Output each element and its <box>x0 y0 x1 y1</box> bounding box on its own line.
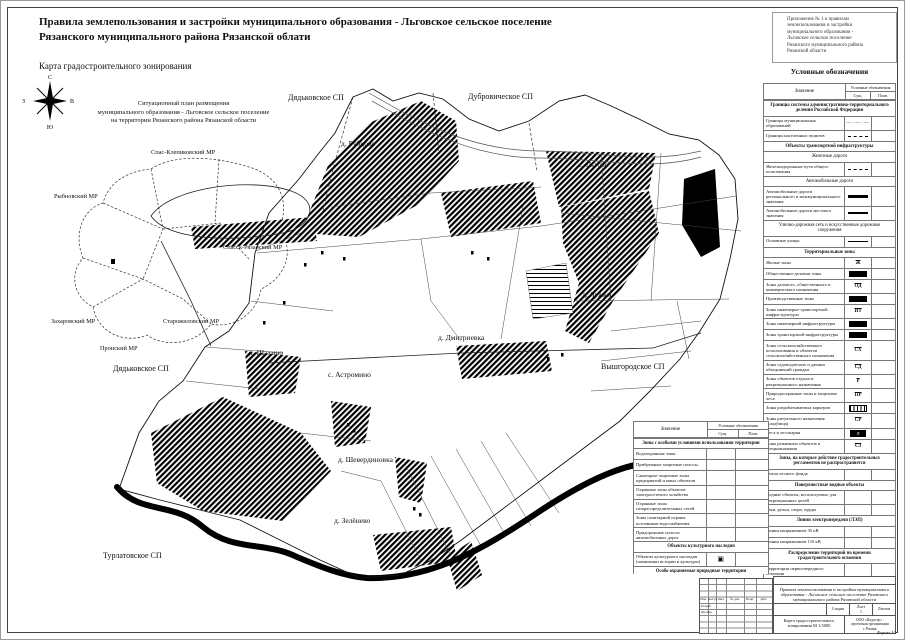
legend-col-planned: План. <box>870 92 895 99</box>
map-label-dubrovicheskoe: Дубровическое СП <box>468 92 533 101</box>
compass-south-label: Ю <box>47 125 53 131</box>
legend-section-header: Улично-дорожная сеть и искусственные дор… <box>764 220 895 236</box>
legend-row-label: Зоны транспортной инфраструктуры <box>764 330 844 340</box>
legend-symbol-planned <box>871 538 895 548</box>
legend-section-header: Объекты культурного наследия <box>634 541 768 551</box>
compass-east-label: В <box>70 99 74 105</box>
legend-row-label: Объекты культурного наследия (памятники … <box>634 553 706 566</box>
approval-note: Приложение № 1 к правилам землепользован… <box>772 12 897 63</box>
legend-symbol-planned <box>735 553 769 566</box>
map-label-luzhki: д. Лужки <box>582 290 611 299</box>
legend-symbol-planned <box>871 280 895 293</box>
legend-symbol-existing: Л <box>844 429 872 439</box>
legend-row-label: Зоны инженерно-транспортной инфраструкту… <box>764 305 844 318</box>
legend-symbol-existing: Р <box>844 375 872 388</box>
legend-symbol-existing <box>844 294 872 304</box>
legend-row-label: Земли лесного фонда <box>764 470 844 480</box>
map-label-zelenevo: д. Зелёнево <box>334 516 370 525</box>
rev-col-izm: Изм. <box>699 597 708 601</box>
format-label: Формат А3 <box>849 630 896 635</box>
symbol-code: ИТ <box>854 309 861 314</box>
legend-row-label: Автомобильные дороги местного значения <box>764 207 844 220</box>
map-label-turlatovskoe: Турлатовское СП <box>103 551 162 560</box>
map-label-vyshgorodskoe: Вышгородское СП <box>601 362 665 371</box>
legend-symbol-existing: —·—·— <box>844 117 872 130</box>
note-line: Рязанской области <box>787 49 894 55</box>
legend-row: Производственные зоны <box>764 293 895 304</box>
legend-symbol-existing <box>844 470 872 480</box>
symbol-code: ПР <box>855 393 862 398</box>
legend-row-label: Железнодорожные пути общего пользования <box>764 163 844 176</box>
map-striped-field <box>526 263 573 319</box>
legend-symbol-planned <box>871 117 895 130</box>
legend-row: Земли лесного фонда <box>764 469 895 480</box>
legend-table-header: Значение Условные обозначения Сущ. План. <box>764 84 895 100</box>
legend-row: Зоны инженерно-транспортной инфраструкту… <box>764 304 895 318</box>
legend-symbol-planned <box>871 330 895 340</box>
symbol-line3 <box>848 195 868 198</box>
sheet: С Ю В З <box>0 0 905 640</box>
legend-symbol-existing <box>844 527 872 537</box>
legend-symbol-planned <box>871 470 895 480</box>
legend-section-header: Территориальные зоны <box>764 247 895 257</box>
legend-row: Природоохранные зоны и защитные лесаПР <box>764 388 895 402</box>
title-block: Правила землепользования и застройки мун… <box>773 576 896 634</box>
legend-row: Зоны сельскохозяйственного использования… <box>764 340 895 359</box>
legend2-col-existing: Сущ. <box>708 430 738 437</box>
symbol-code: СЗ <box>855 444 861 449</box>
legend-row-label: Зоны сельскохозяйственного использования… <box>764 341 844 359</box>
symbol-code: СР <box>855 418 862 423</box>
symbol-forest: Л <box>850 430 866 437</box>
legend-symbol-planned <box>871 527 895 537</box>
legend-symbol-existing <box>706 449 735 459</box>
legend-row: Охранные зоны объектов электросетевого х… <box>634 485 768 499</box>
legend-row: Охранные зоны газораспределительных сете… <box>634 499 768 513</box>
legend-symbol-existing: ОД <box>844 280 872 293</box>
legend-symbol-existing <box>706 500 735 513</box>
legend-symbol-planned <box>871 319 895 329</box>
legend-symbol-planned <box>871 429 895 439</box>
symbol-code: СД <box>855 365 862 370</box>
legend-row-label: Основные улицы <box>764 237 844 247</box>
symbol-hatch <box>849 405 867 412</box>
legend2-panel: Значение Условные обозначения Сущ. План.… <box>633 421 769 574</box>
legend-row-label: Зоны делового, общественного и коммерчес… <box>764 280 844 293</box>
legend-row-label: Общественно-деловые зоны <box>764 269 844 279</box>
legend-row-label: Зоны инженерной инфраструктуры <box>764 319 844 329</box>
symbol-dashdot: —·—·— <box>846 121 869 126</box>
legend-symbol-existing <box>844 187 872 205</box>
legend-col-value: Значение <box>764 84 845 99</box>
symbol-black <box>849 332 867 338</box>
legend-row-label: Водные объекты, используемые для рекреац… <box>764 491 844 504</box>
legend-row: Линии напряжением 110 кВ <box>764 537 895 548</box>
legend-symbol-planned <box>871 131 895 141</box>
legend-symbol-planned <box>735 528 769 541</box>
legend-symbol-existing <box>844 403 872 413</box>
legend-symbol-existing <box>844 131 872 141</box>
map-label-dyadkovskoe-top: Дядьковское СП <box>288 93 344 102</box>
legend-symbol-existing <box>844 330 872 340</box>
legend-symbol-existing <box>706 486 735 499</box>
inset-title-line: Ситуационный план размещения <box>76 100 291 109</box>
map-label-lgovo: с. Льгово <box>579 160 608 169</box>
legend-row-label: Леса и лесопарки <box>764 429 844 439</box>
rev-col-data: Дата <box>756 597 771 601</box>
legend-symbol-planned <box>735 486 769 499</box>
rev-row-developed: Разраб. <box>701 604 712 608</box>
legend-row-label: Охранные зоны газораспределительных сете… <box>634 500 706 513</box>
legend-row-label: Прибрежные защитные полосы <box>634 460 706 470</box>
inset-title-line: на территории Рязанского района Рязанско… <box>76 117 291 126</box>
legend-symbol-existing: ИТ <box>844 305 872 318</box>
inset-settlement-marker <box>111 259 115 264</box>
legend-row: Автомобильные дороги местного значения <box>764 206 895 220</box>
sheets-label: Листов <box>873 607 895 612</box>
revision-grid-labels: Изм. Кол.уч. Лист № док. Подп. Дата <box>699 597 773 601</box>
legend-col-existing: Сущ. <box>846 92 870 99</box>
legend-symbol-existing <box>844 163 872 176</box>
legend-symbol-existing: ▣ <box>706 553 735 566</box>
page-title: Правила землепользования и застройки мун… <box>39 15 659 45</box>
legend-row-label: Зоны объектов отдыха и рекреационного на… <box>764 375 844 388</box>
symbol-black <box>849 321 867 327</box>
stage-label: Стадия <box>827 607 849 612</box>
legend-row: Зоны ритуального назначения (кладбища)СР <box>764 413 895 427</box>
legend-row: Железнодорожные пути общего пользования <box>764 162 895 176</box>
legend-symbol-existing <box>844 269 872 279</box>
legend-table: Значение Условные обозначения Сущ. План.… <box>763 83 896 579</box>
legend-row: Зоны садоводческих и дачных объединений … <box>764 360 895 374</box>
map-label-shakhino: д. Шахино <box>249 348 283 357</box>
map-label-rubtsovo: д. Рубцово <box>341 139 375 148</box>
page-title-line1: Правила землепользования и застройки мун… <box>39 15 659 30</box>
legend-symbol-existing <box>706 471 735 484</box>
legend-row-label: Жилые зоны <box>764 258 844 268</box>
legend-row-label: Зоны ритуального назначения (кладбища) <box>764 414 844 427</box>
title-block-bar <box>774 577 895 585</box>
legend-row: Водоохранные зоны <box>634 448 768 459</box>
legend-row: Реки, ручьи, озера, пруды <box>764 504 895 515</box>
legend-row-label: Автомобильные дороги регионального и меж… <box>764 187 844 205</box>
legend-row: Водные объекты, используемые для рекреац… <box>764 490 895 504</box>
org-line: проектная организация <box>845 622 895 627</box>
legend-row-label: Линии напряжением 35 кВ <box>764 527 844 537</box>
symbol-code: СХ <box>855 348 862 353</box>
rev-col-podp: Подп. <box>744 597 756 601</box>
title-block-empty-cell <box>774 604 826 615</box>
title-block-map-title: Карта градостроительного зонирования М 1… <box>774 616 844 634</box>
symbol-okn: ▣ <box>717 556 724 563</box>
inset-title-line: муниципального образования - Льговское с… <box>76 109 291 118</box>
legend-row: Прибрежные защитные полосы <box>634 459 768 470</box>
map-label-dyadkovskoe-left: Дядьковское СП <box>113 364 169 373</box>
legend-symbol-planned <box>871 237 895 247</box>
map-subtitle: Карта градостроительного зонирования <box>39 61 191 71</box>
symbol-line2 <box>848 212 868 214</box>
legend-row-label: Зоны режимных объектов и спецназначения <box>764 440 844 453</box>
legend-symbol-existing <box>844 491 872 504</box>
legend-symbol-planned <box>735 460 769 470</box>
legend-symbol-existing: СД <box>844 361 872 374</box>
legend-section-header: Зоны, на которые действие градостроитель… <box>764 453 895 469</box>
inset-label-starozhilovsky: Старожиловский МР <box>163 318 219 325</box>
symbol-dash <box>848 136 868 137</box>
legend-symbol-planned <box>871 440 895 453</box>
legend-symbol-planned <box>871 491 895 504</box>
legend-symbol-existing <box>706 528 735 541</box>
legend-symbol-planned <box>871 305 895 318</box>
legend-row: Основные улицы <box>764 236 895 247</box>
legend-row-label: Границы населенных пунктов <box>764 131 844 141</box>
legend-section-header: Объекты транспортной инфраструктуры <box>764 141 895 151</box>
legend2-col-symbols: Условные обозначения <box>708 422 768 430</box>
title-block-doc-title: Правила землепользования и застройки мун… <box>774 585 895 604</box>
compass-icon: С Ю В З <box>22 75 74 131</box>
legend-row: Границы населенных пунктов <box>764 130 895 141</box>
title-block-stage: Стадия <box>826 604 849 615</box>
legend-symbol-planned <box>735 514 769 527</box>
legend-row: Линии напряжением 35 кВ <box>764 526 895 537</box>
legend-symbol-existing <box>844 207 872 220</box>
legend-row-label: Границы муниципальных образований <box>764 117 844 130</box>
legend-row-label: Линии напряжением 110 кВ <box>764 538 844 548</box>
map-label-sheverdinovka: д. Шевердиновка <box>338 455 393 464</box>
page-title-line2: Рязанского муниципального района Рязанск… <box>39 30 659 45</box>
legend-symbol-existing <box>844 505 872 515</box>
legend-symbol-existing <box>706 460 735 470</box>
legend-symbol-planned <box>871 207 895 220</box>
legend-row: Зоны делового, общественного и коммерчес… <box>764 279 895 293</box>
legend-section-header: Железные дороги <box>764 151 895 161</box>
legend-row: Жилые зоныЖ <box>764 257 895 268</box>
map-built-up-areas <box>151 101 659 591</box>
legend-col-symbols: Условные обозначения <box>846 84 895 92</box>
legend-symbol-planned <box>871 187 895 205</box>
legend-row-label: Зоны разрабатываемых карьеров <box>764 403 844 413</box>
symbol-code: Ж <box>856 261 861 266</box>
legend-row-label: Зоны санитарной охраны источников водосн… <box>634 514 706 527</box>
legend-symbol-existing <box>844 319 872 329</box>
legend2-col-value: Значение <box>634 422 707 437</box>
legend-symbol-planned <box>871 258 895 268</box>
legend-symbol-existing <box>844 538 872 548</box>
legend-row: Леса и лесопаркиЛ <box>764 428 895 439</box>
inset-label-pronsky: Пронский МР <box>100 345 137 352</box>
legend-symbol-existing: СР <box>844 414 872 427</box>
legend-row: Общественно-деловые зоны <box>764 268 895 279</box>
inset-label-zakharovsky: Захаровский МР <box>51 318 95 325</box>
symbol-code: Р <box>857 379 860 384</box>
legend-row: Зоны объектов отдыха и рекреационного на… <box>764 374 895 388</box>
legend-row-label: Реки, ручьи, озера, пруды <box>764 505 844 515</box>
legend-section-header: Распределение территорий по времени град… <box>764 548 895 564</box>
rev-col-koluch: Кол.уч. <box>708 597 716 601</box>
legend-row: Придорожные полосы автомобильных дорог <box>634 527 768 541</box>
legend-row: Зоны инженерной инфраструктуры <box>764 318 895 329</box>
legend-symbol-planned <box>735 449 769 459</box>
legend-row-label: Придорожные полосы автомобильных дорог <box>634 528 706 541</box>
legend-row: Границы муниципальных образований—·—·— <box>764 116 895 130</box>
legend-symbol-planned <box>871 375 895 388</box>
inset-label-rybnovsky: Рыбновский МР <box>54 193 98 200</box>
legend-symbol-planned <box>735 500 769 513</box>
legend-symbol-planned <box>871 505 895 515</box>
legend-row-label: Санитарно-защитные зоны предприятий и ин… <box>634 471 706 484</box>
legend-symbol-planned <box>871 163 895 176</box>
inset-label-spassk-ryazansky: Спасск-Рязанский МР <box>223 244 282 251</box>
legend-row-label: Природоохранные зоны и защитные леса <box>764 389 844 402</box>
legend-symbol-existing <box>706 514 735 527</box>
legend-row: Зоны транспортной инфраструктуры <box>764 329 895 340</box>
title-block-sheets: Листов <box>872 604 895 615</box>
legend-section-header: Линии электропередачи (ЛЭП) <box>764 515 895 525</box>
inset-label-spas-klepikovsky: Спас-Клепиковский МР <box>151 149 215 156</box>
legend-symbol-planned <box>871 389 895 402</box>
legend-symbol-existing: ПР <box>844 389 872 402</box>
legend-section-header: Особо охраняемые природные территории <box>634 566 768 574</box>
legend-symbol-planned <box>871 403 895 413</box>
legend-row: Зоны разрабатываемых карьеров <box>764 402 895 413</box>
title-block-stage-row: Стадия Лист 1 Листов <box>774 604 895 616</box>
legend-symbol-planned <box>871 294 895 304</box>
inset-title: Ситуационный план размещения муниципальн… <box>76 100 291 126</box>
legend-row: Санитарно-защитные зоны предприятий и ин… <box>634 470 768 484</box>
map-label-astromino: с. Астромино <box>328 370 371 379</box>
legend-symbol-planned <box>871 341 895 359</box>
title-block-sheet: Лист 1 <box>849 604 872 615</box>
symbol-black <box>849 296 867 302</box>
legend-row-label: Водоохранные зоны <box>634 449 706 459</box>
symbol-code: ОД <box>855 284 862 289</box>
legend-symbol-existing <box>844 237 872 247</box>
legend-symbol-existing: СХ <box>844 341 872 359</box>
legend2-table-header: Значение Условные обозначения Сущ. План. <box>634 422 768 438</box>
legend2-table: Значение Условные обозначения Сущ. План.… <box>633 421 769 574</box>
legend-row: Объекты культурного наследия (памятники … <box>634 552 768 566</box>
legend-symbol-planned <box>871 361 895 374</box>
symbol-line1 <box>848 241 868 242</box>
legend-symbol-planned <box>871 269 895 279</box>
legend-row: Автомобильные дороги регионального и меж… <box>764 186 895 205</box>
legend-panel: Условные обозначения Значение Условные о… <box>763 67 896 579</box>
legend-section-header: Границы системы административно-территор… <box>764 100 895 116</box>
legend-section-header: Зоны с особыми условиями использования т… <box>634 438 768 448</box>
legend-symbol-planned <box>735 471 769 484</box>
legend-symbol-existing: СЗ <box>844 440 872 453</box>
legend-row: Зоны режимных объектов и спецназначенияС… <box>764 439 895 453</box>
legend-row: Зоны санитарной охраны источников водосн… <box>634 513 768 527</box>
rev-col-list: Лист <box>716 597 726 601</box>
legend-title: Условные обозначения <box>763 67 896 76</box>
legend-symbol-existing: Ж <box>844 258 872 268</box>
compass-north-label: С <box>48 75 52 81</box>
legend-row-label: Зоны садоводческих и дачных объединений … <box>764 361 844 374</box>
legend2-col-planned: План. <box>738 430 769 437</box>
legend-section-header: Автомобильные дороги <box>764 176 895 186</box>
map-label-dmitrievka: д. Дмитриевка <box>438 333 484 342</box>
legend-section-header: Поверхностные водные объекты <box>764 480 895 490</box>
legend-symbol-planned <box>871 414 895 427</box>
rev-col-dok: № док. <box>726 597 744 601</box>
map-forest-zone <box>682 169 720 257</box>
symbol-dash <box>848 169 868 170</box>
legend-row-label: Производственные зоны <box>764 294 844 304</box>
legend-row-label: Охранные зоны объектов электросетевого х… <box>634 486 706 499</box>
compass-west-label: З <box>22 99 25 105</box>
symbol-black <box>849 271 867 277</box>
sheet-value: 1 <box>850 610 872 615</box>
rev-row-checked: Провер. <box>701 610 712 614</box>
